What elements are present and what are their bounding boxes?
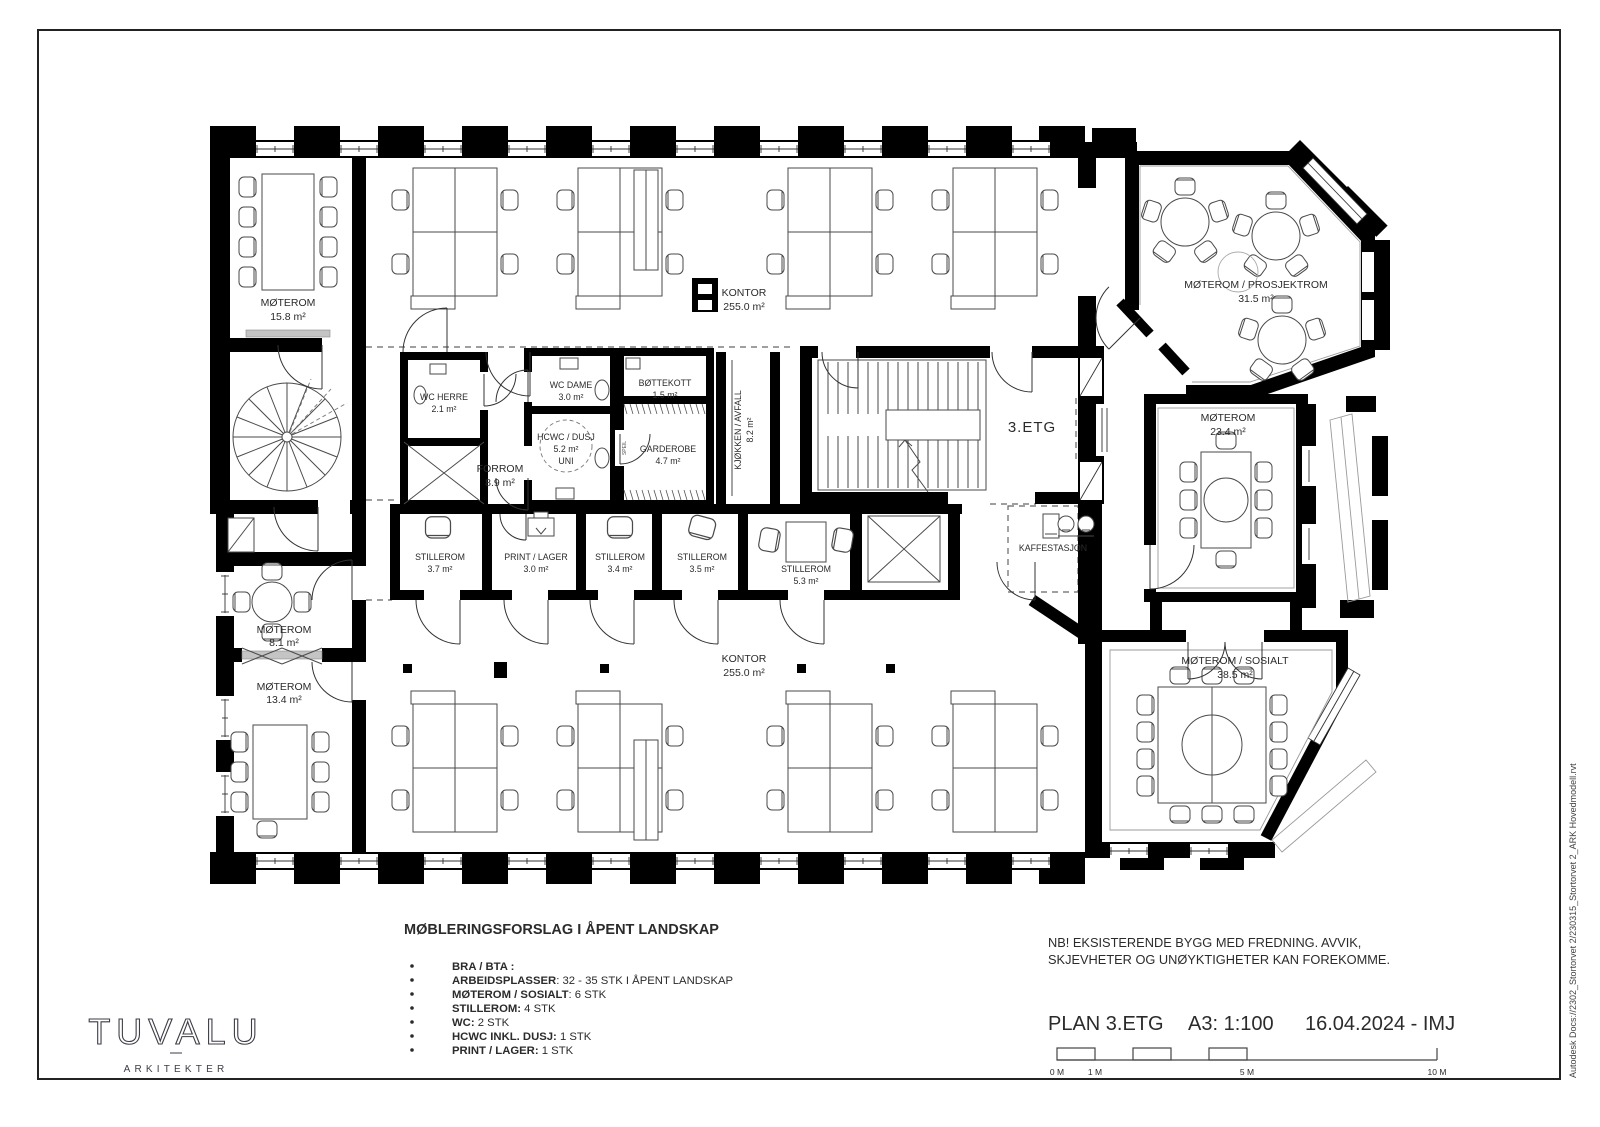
room-area-moterom-15-8: 15.8 m² <box>270 311 306 323</box>
legend-item-bold: ARBEIDSPLASSER <box>452 975 556 987</box>
room-area-prosjektrom: 31.5 m² <box>1238 293 1274 305</box>
room-label-moterom-15-8: MØTEROM <box>261 297 316 309</box>
room-label-moterom-13-4: MØTEROM <box>257 681 312 693</box>
legend-item-bold: STILLEROM: <box>452 1003 521 1015</box>
room-label-print-lager: PRINT / LAGER <box>504 552 567 562</box>
room-label-kontor-top: KONTOR <box>722 287 767 299</box>
legend-item-rest: : 32 - 35 STK I ÅPENT LANDSKAP <box>556 974 733 987</box>
note-line-2: SKJEVHETER OG UNØYKTIGHETER KAN FOREKOMM… <box>1048 952 1390 967</box>
legend-item-hcwc: HCWC INKL. DUSJ: 1 STK <box>452 1031 592 1043</box>
legend-title: MØBLERINGSFORSLAG I ÅPENT LANDSKAP <box>404 921 719 938</box>
legend-item-rest: 4 STK <box>521 1003 556 1015</box>
logo-tuvalu: TUVALU <box>88 1011 263 1052</box>
legend-item-arbeidsplasser: ARBEIDSPLASSER: 32 - 35 STK I ÅPENT LAND… <box>452 974 733 987</box>
room-label-kontor-bottom: KONTOR <box>722 653 767 665</box>
scale-label-0m: 0 M <box>1050 1067 1064 1077</box>
scale-label-5m: 5 M <box>1240 1067 1254 1077</box>
legend-item-print-lager: PRINT / LAGER: 1 STK <box>452 1045 574 1057</box>
floor-label-3etg: 3.ETG <box>1008 419 1056 436</box>
room-label-stillerom-5-3: STILLEROM <box>781 564 831 574</box>
room-label-stillerom-3-5: STILLEROM <box>677 552 727 562</box>
room-area-bottekott: 1.5 m² <box>653 390 678 400</box>
room-label-forrom: FORROM <box>477 463 524 475</box>
meeting-table-sosialt <box>1137 667 1287 823</box>
room-label-bottekott: BØTTEKOTT <box>639 378 692 388</box>
room-label-moterom-8-1: MØTEROM <box>257 624 312 636</box>
meeting-table-15-8 <box>239 174 337 290</box>
room-area-kontor-top: 255.0 m² <box>723 301 765 313</box>
logo-arkitekter: ARKITEKTER <box>124 1064 229 1075</box>
note-line-1: NB! EKSISTERENDE BYGG MED FREDNING. AVVI… <box>1048 935 1361 950</box>
legend-item-bold: WC: <box>452 1017 475 1029</box>
legend-item-rest: 1 STK <box>539 1045 574 1057</box>
room-label-prosjektrom: MØTEROM / PROSJEKTROM <box>1184 279 1328 291</box>
room-label-wc-dame: WC DAME <box>550 380 593 390</box>
room-label-garderobe: GARDEROBE <box>640 444 696 454</box>
file-path-side-text: Autodesk Docs://2302_Stortorvet 2/230315… <box>1568 763 1578 1078</box>
legend-item-rest: 2 STK <box>475 1017 510 1029</box>
legend-item-stillerom: STILLEROM: 4 STK <box>452 1003 556 1015</box>
legend-item-rest: 1 STK <box>557 1031 592 1043</box>
legend-item-rest: : 6 STK <box>569 989 607 1001</box>
legend-item-wc: WC: 2 STK <box>452 1017 510 1029</box>
room-area-print-lager: 3.0 m² <box>524 564 549 574</box>
floor-plan-sheet: MØTEROM 15.8 m² KONTOR 255.0 m² MØTEROM … <box>0 0 1600 1127</box>
legend-item-bold: HCWC INKL. DUSJ: <box>452 1031 557 1043</box>
legend-item-bra-bta: BRA / BTA : <box>452 961 514 973</box>
room-area-moterom-13-4: 13.4 m² <box>266 694 302 706</box>
legend-item-bold: MØTEROM / SOSIALT <box>452 989 569 1001</box>
room-area-stillerom-5-3: 5.3 m² <box>794 576 819 586</box>
room-label-sosialt: MØTEROM / SOSIALT <box>1181 655 1289 667</box>
legend-item-bold: PRINT / LAGER: <box>452 1045 539 1057</box>
room-area-moterom-8-1: 8.1 m² <box>269 637 299 649</box>
room-label-wc-herre: WC HERRE <box>420 392 468 402</box>
plan-scale: A3: 1:100 <box>1188 1013 1274 1035</box>
room-area-forrom: 8.9 m² <box>485 477 515 489</box>
room-area-sosialt: 38.5 m² <box>1217 669 1253 681</box>
room-area-garderobe: 4.7 m² <box>656 456 681 466</box>
room-label-hcwc: HCWC / DUSJ <box>537 432 595 442</box>
speil-label: SPEIL <box>622 441 628 455</box>
room-label-kjokken: KJØKKEN / AVFALL <box>733 390 743 470</box>
scale-label-10m: 10 M <box>1428 1067 1447 1077</box>
room-label-moterom-23-4: MØTEROM <box>1201 412 1256 424</box>
scale-bar <box>1057 1048 1437 1060</box>
room-area-wc-herre: 2.1 m² <box>432 404 457 414</box>
legend: MØBLERINGSFORSLAG I ÅPENT LANDSKAP BRA /… <box>404 921 733 1057</box>
room-area-wc-dame: 3.0 m² <box>559 392 584 402</box>
room-area-moterom-23-4: 23.4 m² <box>1210 426 1246 438</box>
plan-date-author: 16.04.2024 - IMJ <box>1305 1013 1455 1035</box>
room-area-kjokken: 8.2 m² <box>745 417 755 442</box>
room-label-stillerom-3-7: STILLEROM <box>415 552 465 562</box>
drawing-sheet: MØTEROM 15.8 m² KONTOR 255.0 m² MØTEROM … <box>0 0 1600 1127</box>
room-area-stillerom-3-4: 3.4 m² <box>608 564 633 574</box>
spiral-stair <box>233 379 347 491</box>
room-area-stillerom-3-7: 3.7 m² <box>428 564 453 574</box>
room-label-kaffestasjon: KAFFESTASJON <box>1019 543 1087 553</box>
legend-item-moterom-sosialt: MØTEROM / SOSIALT: 6 STK <box>452 989 607 1001</box>
room-area-kontor-bottom: 255.0 m² <box>723 667 765 679</box>
meeting-table-13-4 <box>231 725 329 838</box>
room-label-stillerom-3-4: STILLEROM <box>595 552 645 562</box>
room-label-hcwc-uni: UNI <box>558 456 573 466</box>
scale-label-1m: 1 M <box>1088 1067 1102 1077</box>
room-area-stillerom-3-5: 3.5 m² <box>690 564 715 574</box>
room-area-hcwc: 5.2 m² <box>554 444 579 454</box>
plan-title: PLAN 3.ETG <box>1048 1013 1164 1035</box>
legend-item-bold: BRA / BTA : <box>452 961 514 973</box>
main-stair <box>818 360 986 492</box>
